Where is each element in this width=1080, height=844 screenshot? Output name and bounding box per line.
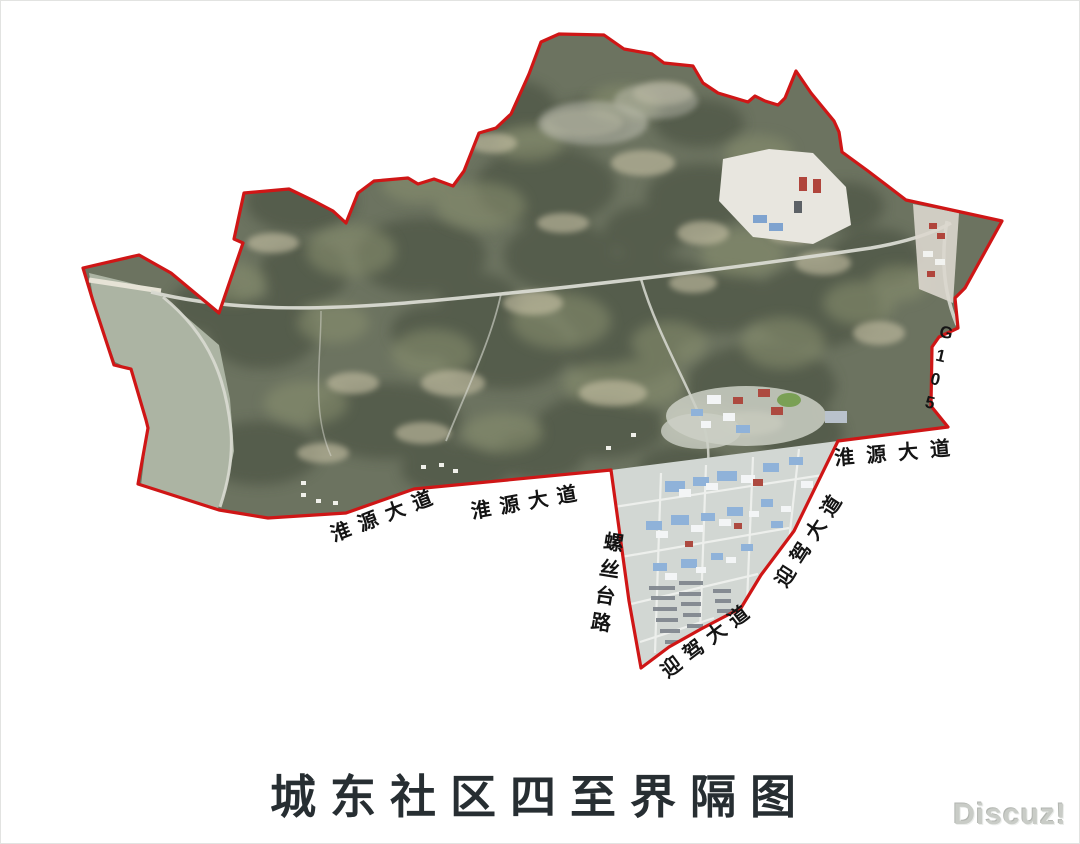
discuz-watermark: Discuz! [953,798,1067,832]
map-imagery [1,1,1080,844]
satellite-map [1,1,1080,844]
g105-town-strip [913,204,959,303]
map-page: 淮源大道 淮源大道 淮源大道 迎驾大道 迎驾大道 螺丝台路 G105 城东社区四… [0,0,1080,844]
map-title: 城东社区四至界隔图 [270,761,810,827]
